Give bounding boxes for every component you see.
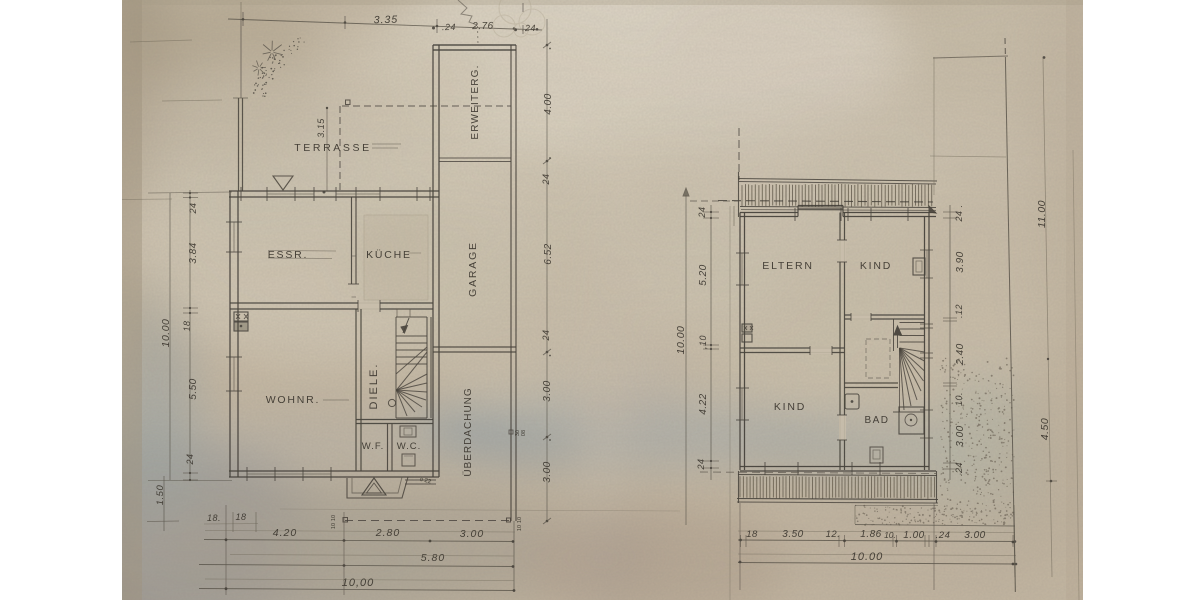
svg-text:3.84: 3.84 <box>188 242 199 263</box>
svg-text:10: 10 <box>517 525 523 531</box>
svg-text:ÜBERDACHUNG: ÜBERDACHUNG <box>462 387 474 476</box>
svg-text:1.86: 1.86 <box>860 529 881 540</box>
svg-text:11.00: 11.00 <box>1036 200 1048 228</box>
svg-text:24: 24 <box>188 202 198 214</box>
svg-text:3.00: 3.00 <box>542 380 553 401</box>
svg-text:10: 10 <box>517 517 523 523</box>
svg-text:4.20: 4.20 <box>273 527 297 539</box>
svg-text:4.50: 4.50 <box>1039 418 1051 440</box>
svg-text:18: 18 <box>182 320 192 331</box>
svg-text:.12: .12 <box>954 304 964 318</box>
svg-text:24: 24 <box>541 173 551 185</box>
svg-text:2.76: 2.76 <box>471 21 494 32</box>
svg-text:3.15: 3.15 <box>316 118 326 138</box>
svg-text:4.00: 4.00 <box>543 93 554 114</box>
svg-text:WOHNR.: WOHNR. <box>266 394 321 406</box>
svg-text:.24: .24 <box>936 530 951 541</box>
svg-text:.24: .24 <box>954 462 964 476</box>
svg-text:24: 24 <box>185 453 195 465</box>
svg-text:KÜCHE: KÜCHE <box>366 249 412 261</box>
svg-text:3.90: 3.90 <box>955 251 966 272</box>
svg-text:3.50: 3.50 <box>782 529 803 540</box>
svg-text:08: 08 <box>521 430 527 436</box>
svg-text:TERRASSE: TERRASSE <box>294 142 371 154</box>
svg-text:5.50: 5.50 <box>188 378 199 399</box>
svg-text:24: 24 <box>697 206 707 218</box>
svg-text:3.00: 3.00 <box>460 528 484 540</box>
svg-text:10,00: 10,00 <box>342 577 375 589</box>
svg-text:W.C.: W.C. <box>397 441 422 452</box>
svg-text:12.: 12. <box>826 529 841 540</box>
svg-text:KIND: KIND <box>774 401 806 413</box>
svg-text:2.40: 2.40 <box>955 343 966 365</box>
svg-text:18.: 18. <box>207 513 221 523</box>
svg-text:24: 24 <box>541 329 551 341</box>
svg-text:W.F.: W.F. <box>362 441 384 452</box>
svg-text:5.20: 5.20 <box>698 264 709 285</box>
svg-text:3.35: 3.35 <box>374 14 399 26</box>
svg-text:1.50: 1.50 <box>155 485 166 506</box>
svg-text:4.22: 4.22 <box>698 393 709 414</box>
svg-text:2.80: 2.80 <box>375 527 400 539</box>
svg-text:3.00: 3.00 <box>964 530 985 541</box>
svg-text:10.00: 10.00 <box>160 319 172 348</box>
svg-text:10: 10 <box>331 515 337 521</box>
svg-text:ELTERN: ELTERN <box>762 260 813 272</box>
svg-text:3.00: 3.00 <box>542 461 553 482</box>
svg-text:24 .: 24 . <box>954 204 964 222</box>
svg-text:ESSR.: ESSR. <box>268 249 309 261</box>
svg-text:GARAGE: GARAGE <box>467 241 479 297</box>
svg-text:18: 18 <box>746 529 758 540</box>
svg-text:DIELE.: DIELE. <box>368 363 380 410</box>
svg-text:.24: .24 <box>522 23 536 33</box>
svg-text:,10: ,10 <box>698 335 708 349</box>
svg-text:18: 18 <box>235 512 246 522</box>
svg-text:3.00: 3.00 <box>955 425 966 446</box>
svg-text:10.: 10. <box>884 530 896 540</box>
svg-text:ERWEITERG.: ERWEITERG. <box>470 64 481 139</box>
svg-text:1.00: 1.00 <box>903 530 924 541</box>
svg-text:10.00: 10.00 <box>675 326 687 355</box>
svg-text:10.00: 10.00 <box>851 551 884 563</box>
svg-text:5.80: 5.80 <box>421 552 445 564</box>
svg-text:10: 10 <box>331 523 337 529</box>
svg-text:10.: 10. <box>954 392 964 406</box>
svg-text:24: 24 <box>696 458 706 470</box>
svg-text:.24: .24 <box>442 22 456 32</box>
svg-text:BAD: BAD <box>864 415 889 426</box>
svg-text:6.52: 6.52 <box>543 243 554 264</box>
svg-text:KIND: KIND <box>860 260 892 272</box>
